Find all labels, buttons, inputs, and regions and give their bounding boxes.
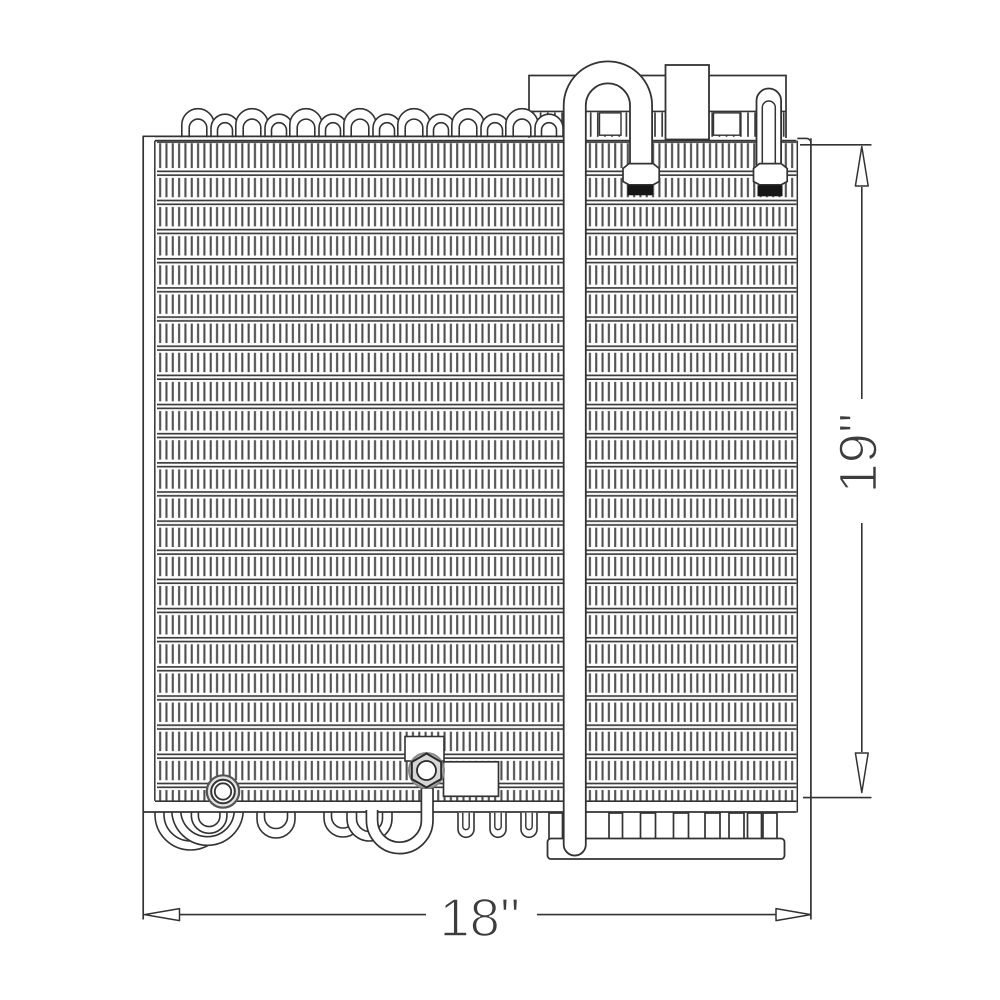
svg-text:19'': 19'' (829, 413, 889, 494)
svg-text:18'': 18'' (440, 888, 521, 948)
